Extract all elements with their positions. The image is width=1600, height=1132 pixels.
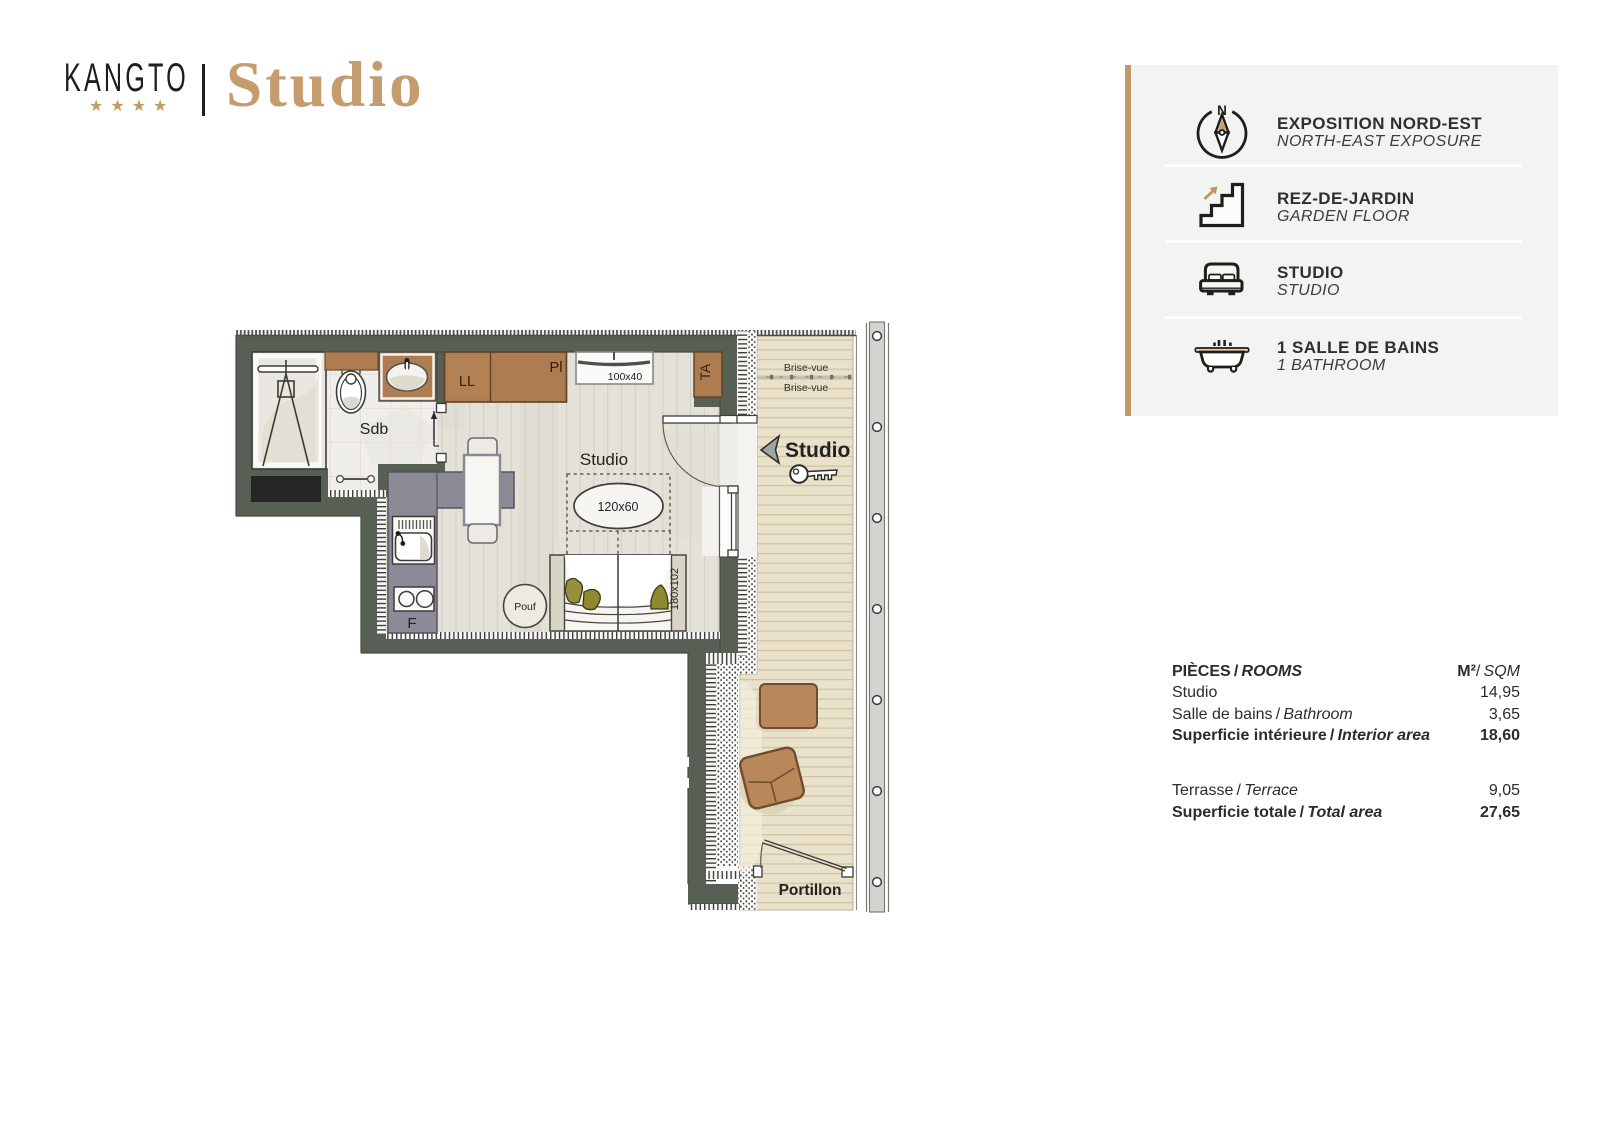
svg-text:Studio: Studio — [785, 439, 850, 462]
svg-text:Studio: Studio — [580, 450, 628, 469]
svg-text:F: F — [407, 615, 416, 632]
svg-text:Sdb: Sdb — [360, 421, 389, 438]
svg-text:Brise-vue: Brise-vue — [784, 382, 829, 394]
svg-text:120x60: 120x60 — [597, 500, 638, 514]
svg-text:N: N — [1217, 103, 1227, 118]
svg-text:Brise-vue: Brise-vue — [784, 362, 829, 374]
svg-text:180x102: 180x102 — [669, 568, 681, 610]
svg-text:Pl: Pl — [550, 360, 563, 376]
svg-text:TA: TA — [698, 364, 713, 380]
svg-text:Portillon: Portillon — [779, 882, 842, 899]
svg-text:100x40: 100x40 — [608, 371, 643, 383]
svg-text:LL: LL — [459, 374, 475, 390]
svg-text:Pouf: Pouf — [514, 601, 536, 613]
